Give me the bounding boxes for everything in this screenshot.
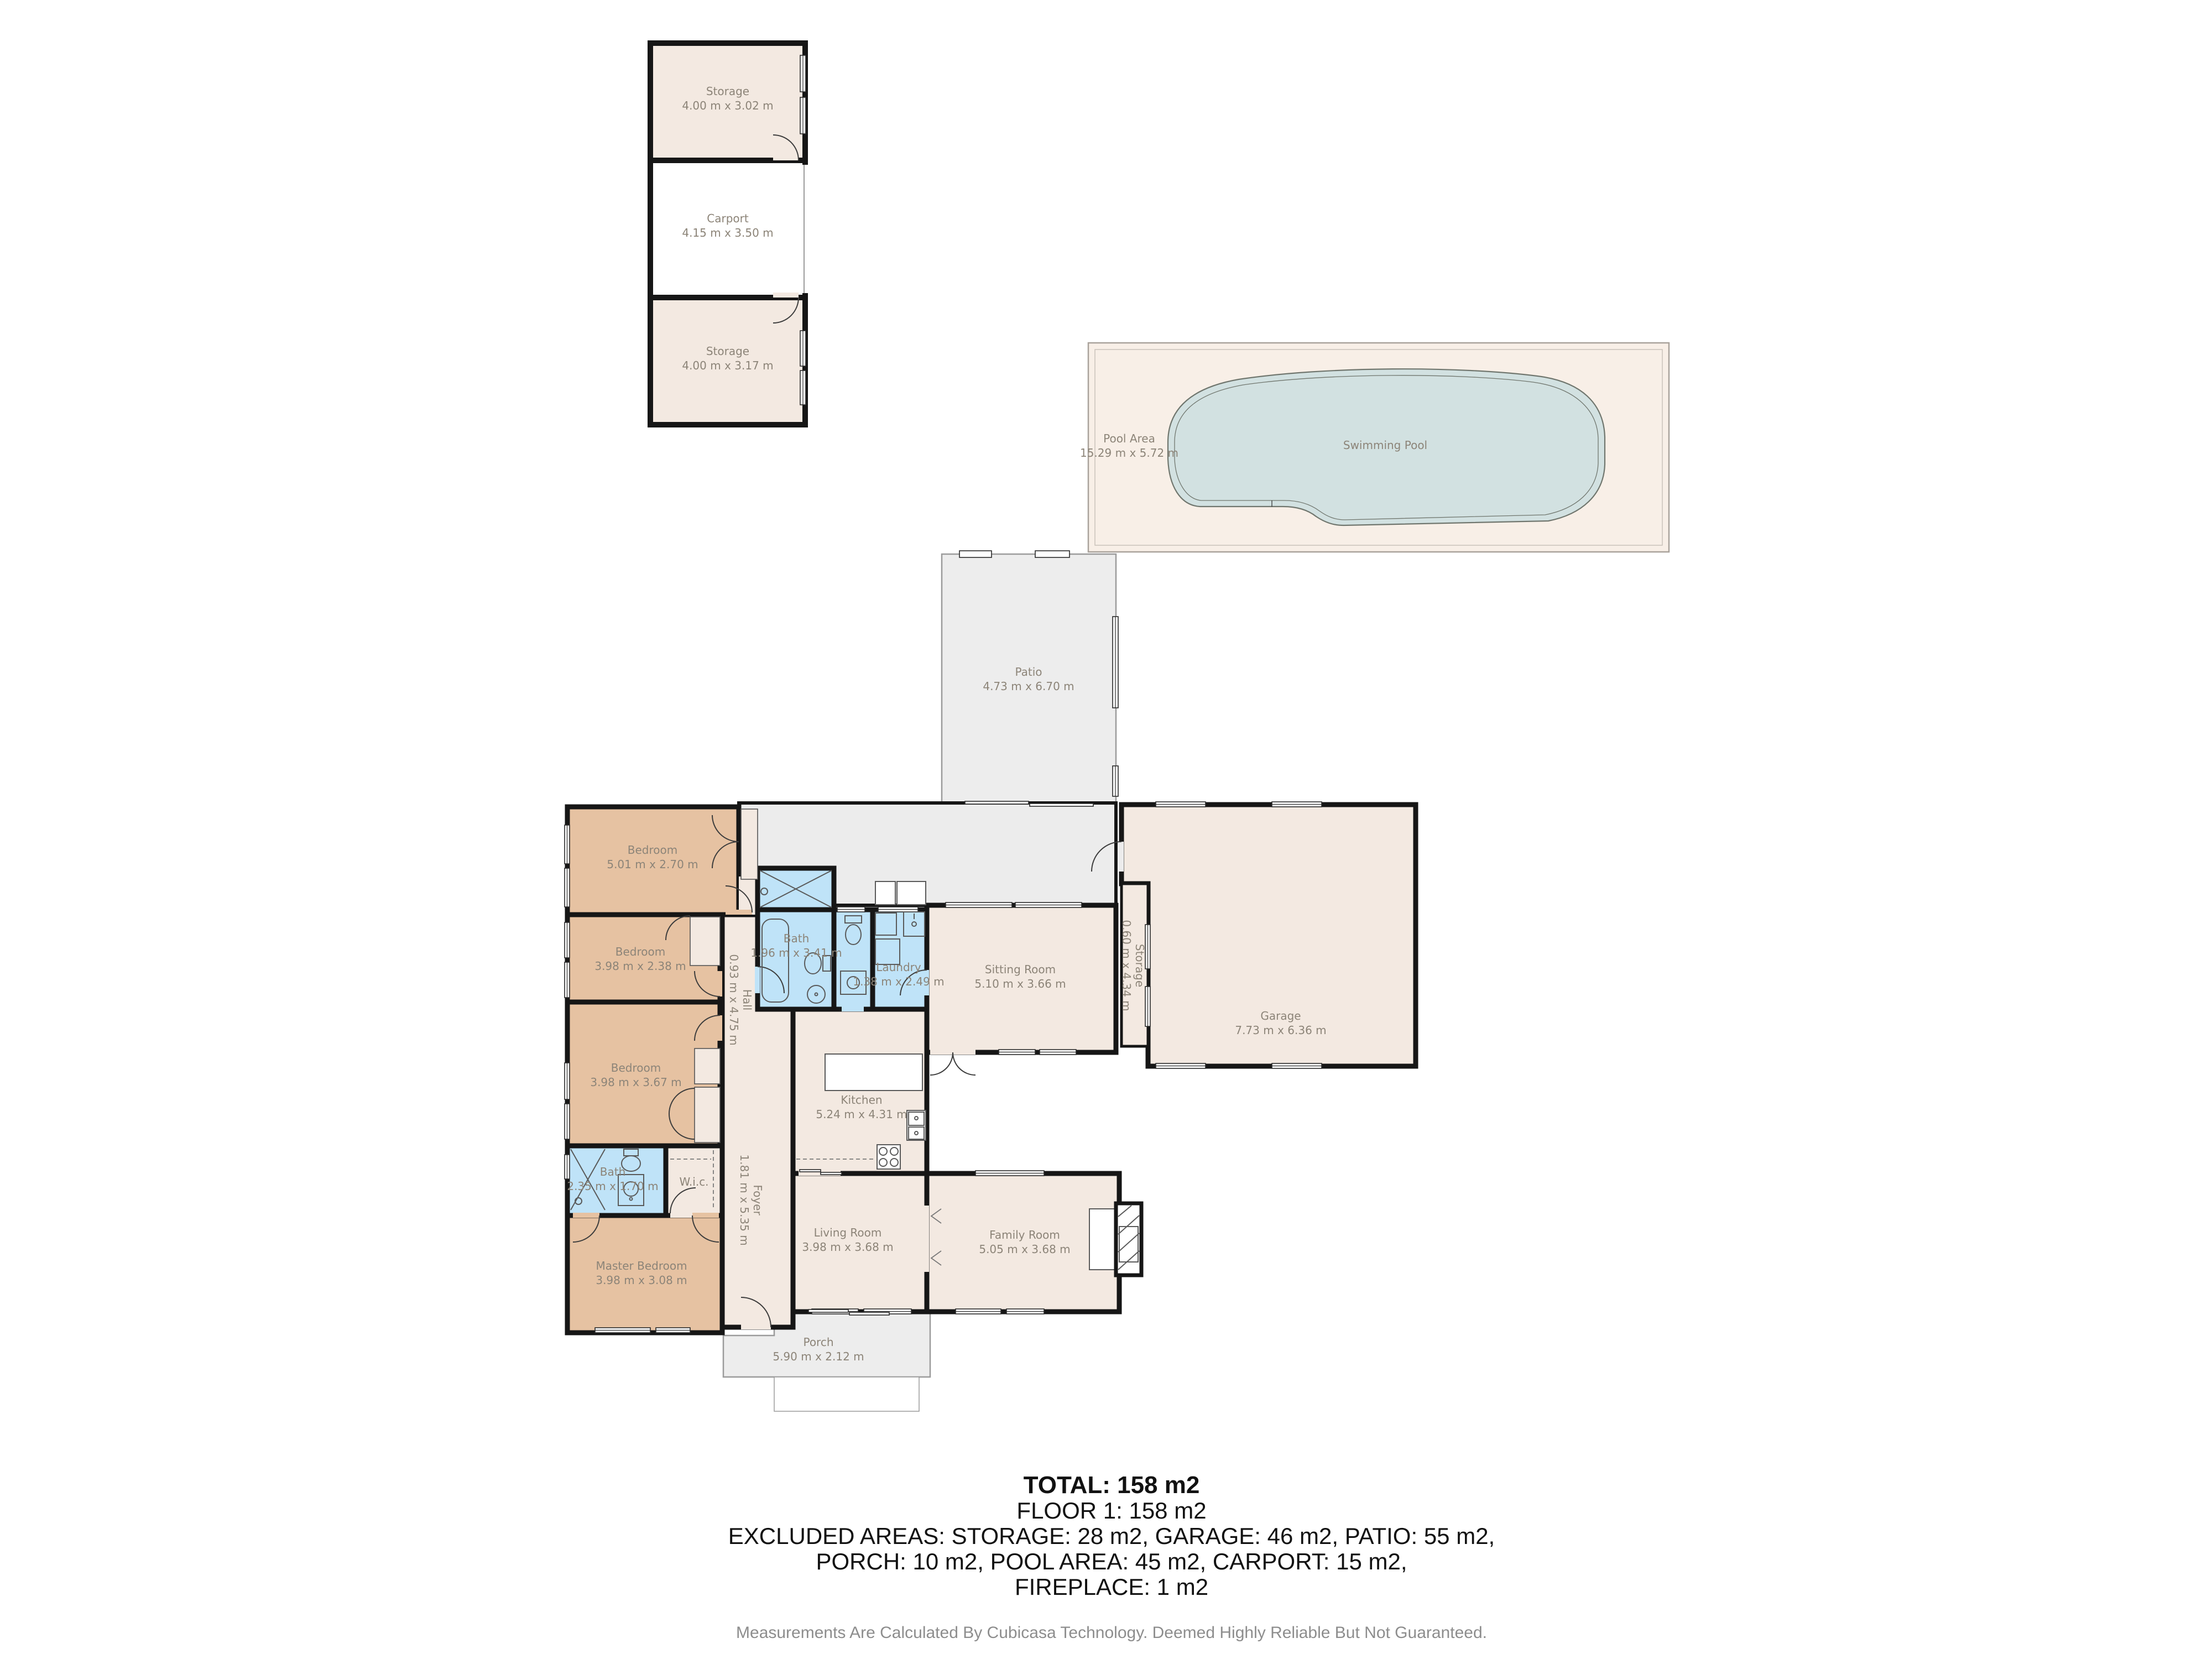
bath-main-label: Bath bbox=[784, 932, 810, 945]
floorplan-canvas: Storage 4.00 m x 3.02 m Carport 4.15 m x… bbox=[0, 0, 2212, 1659]
summary-block: TOTAL: 158 m2 FLOOR 1: 158 m2 EXCLUDED A… bbox=[728, 1472, 1495, 1642]
bath-ensuite-door-gap bbox=[573, 1213, 599, 1218]
summary-total: TOTAL: 158 m2 bbox=[1024, 1472, 1200, 1499]
porch-dims: 5.90 m x 2.12 m bbox=[773, 1350, 864, 1363]
garage-dims: 7.73 m x 6.36 m bbox=[1235, 1024, 1326, 1037]
bedroom-lower-door-gap bbox=[717, 1015, 722, 1041]
kitchen-double-door-arc-a bbox=[930, 1052, 953, 1075]
bath-main-door-gap bbox=[755, 967, 760, 993]
bedroom-mid-label: Bedroom bbox=[615, 945, 665, 958]
foyer-label: Foyer bbox=[751, 1185, 764, 1215]
kitchen-room bbox=[793, 1009, 927, 1173]
sitting-room-label: Sitting Room bbox=[985, 963, 1056, 976]
storage-bottom-door-gap bbox=[773, 293, 799, 298]
kitchen-living-slider-b bbox=[821, 1172, 842, 1175]
bedroom-lower-closet-a bbox=[695, 1048, 720, 1084]
pool-area-label: Pool Area bbox=[1103, 432, 1155, 445]
laundry-label: Laundry bbox=[876, 961, 921, 974]
kitchen-living-slider-a bbox=[800, 1170, 821, 1172]
kitchen-double-door-arc-b bbox=[953, 1052, 975, 1075]
storage-bottom-dims: 4.00 m x 3.17 m bbox=[682, 359, 773, 372]
summary-disclaimer: Measurements Are Calculated By Cubicasa … bbox=[736, 1624, 1487, 1642]
porch-label: Porch bbox=[803, 1335, 833, 1349]
porch-slider-a bbox=[808, 1310, 848, 1312]
sitting-room-dims: 5.10 m x 3.66 m bbox=[974, 977, 1066, 990]
living-room-label: Living Room bbox=[814, 1226, 882, 1239]
swimming-pool-label: Swimming Pool bbox=[1343, 439, 1427, 452]
master-bedroom-label: Master Bedroom bbox=[596, 1259, 687, 1272]
living-family-opening bbox=[924, 1206, 929, 1272]
summary-floor: FLOOR 1: 158 m2 bbox=[1016, 1498, 1206, 1524]
kitchen-label: Kitchen bbox=[841, 1093, 882, 1107]
bedroom-top-closet bbox=[741, 809, 758, 879]
family-room-dims: 5.05 m x 3.68 m bbox=[979, 1243, 1070, 1256]
kitchen-dims: 5.24 m x 4.31 m bbox=[816, 1108, 907, 1121]
bedroom-mid-dims: 3.98 m x 2.38 m bbox=[594, 959, 686, 973]
floorplan-page: Storage 4.00 m x 3.02 m Carport 4.15 m x… bbox=[0, 0, 2212, 1659]
family-room-label: Family Room bbox=[989, 1228, 1060, 1241]
bath-main-dims: 1.96 m x 3.41 m bbox=[750, 946, 842, 959]
porch-slider-b bbox=[849, 1312, 889, 1315]
wic-label: W.i.c. bbox=[679, 1175, 708, 1188]
summary-excluded-1: EXCLUDED AREAS: STORAGE: 28 m2, GARAGE: … bbox=[728, 1523, 1495, 1549]
garage-storage-label: Storage bbox=[1133, 944, 1146, 987]
patio-label: Patio bbox=[1015, 665, 1042, 679]
bedroom-lower-label: Bedroom bbox=[611, 1061, 661, 1074]
storage-top-label: Storage bbox=[706, 85, 749, 98]
master-door-gap bbox=[692, 1213, 719, 1218]
patio-area bbox=[942, 554, 1116, 803]
bedroom-top-door-gap bbox=[726, 910, 752, 915]
hall-label: Hall bbox=[740, 989, 754, 1010]
hall-dims: 0.93 m x 4.75 m bbox=[727, 954, 740, 1045]
wc-door-gap bbox=[842, 1006, 864, 1011]
storage-bottom-label: Storage bbox=[706, 345, 749, 358]
patio-slider-a bbox=[965, 801, 1029, 804]
bath-ensuite-dims: 2.35 m x 1.70 m bbox=[567, 1180, 658, 1193]
storage-top-door-gap bbox=[773, 155, 799, 160]
fireplace bbox=[1089, 1203, 1141, 1275]
bath-ensuite-label: Bath bbox=[600, 1165, 626, 1178]
entry-cabinets bbox=[875, 881, 926, 905]
patio-slider-b bbox=[1030, 804, 1093, 806]
carport-dims: 4.15 m x 3.50 m bbox=[682, 226, 773, 239]
bedroom-top-dims: 5.01 m x 2.70 m bbox=[607, 858, 698, 871]
foyer-dims: 1.81 m x 5.35 m bbox=[738, 1154, 751, 1245]
foyer-porch-door-gap bbox=[741, 1324, 771, 1329]
bedroom-mid-closet bbox=[690, 917, 720, 966]
bedroom-mid-door-gap bbox=[717, 971, 722, 997]
garage-storage-dims: 0.60 m x 4.34 m bbox=[1120, 920, 1133, 1011]
summary-excluded-3: FIREPLACE: 1 m2 bbox=[1015, 1574, 1208, 1600]
bedroom-lower-dims: 3.98 m x 3.67 m bbox=[590, 1076, 681, 1089]
summary-excluded-2: PORCH: 10 m2, POOL AREA: 45 m2, CARPORT:… bbox=[816, 1548, 1407, 1574]
living-room-dims: 3.98 m x 3.68 m bbox=[802, 1240, 893, 1254]
master-bedroom-dims: 3.98 m x 3.08 m bbox=[596, 1274, 687, 1287]
carport-label: Carport bbox=[707, 212, 749, 225]
bedroom-lower-closet-b bbox=[695, 1087, 720, 1142]
pool-area-dims: 15.29 m x 5.72 m bbox=[1080, 446, 1178, 460]
garage-label: Garage bbox=[1260, 1009, 1301, 1022]
bedroom-top-label: Bedroom bbox=[628, 843, 677, 857]
storage-top-dims: 4.00 m x 3.02 m bbox=[682, 99, 773, 112]
entry-garage-door-gap bbox=[1119, 842, 1124, 872]
porch-step bbox=[774, 1377, 919, 1411]
patio-dims: 4.73 m x 6.70 m bbox=[983, 680, 1074, 693]
laundry-dims: 1.38 m x 2.49 m bbox=[853, 975, 944, 988]
